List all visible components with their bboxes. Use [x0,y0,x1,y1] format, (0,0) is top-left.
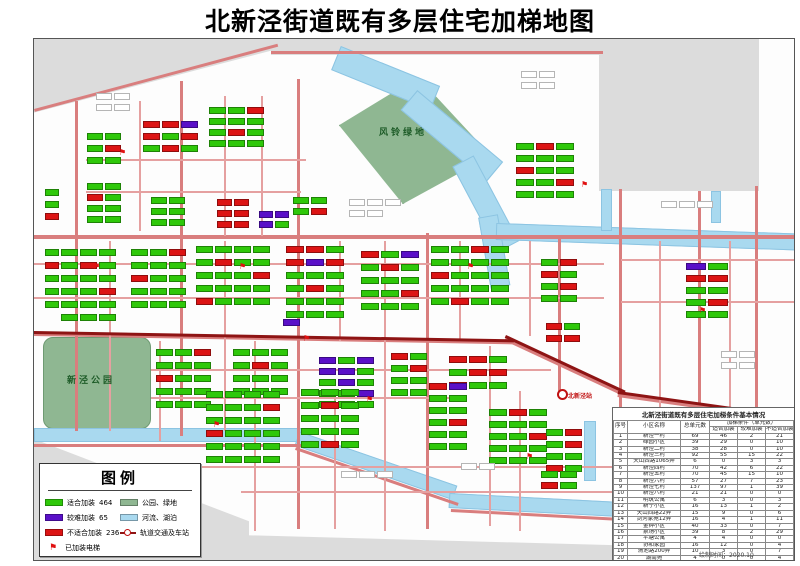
legend-title: 图例 [40,467,200,488]
building-block [529,409,547,416]
building-block [565,429,582,436]
building-block [326,272,344,279]
building-outline [341,471,357,478]
building-block [61,288,78,295]
building-block [196,259,213,266]
building-block [556,167,574,174]
building-block [151,208,167,215]
building-block [105,133,121,140]
building-block [206,456,223,463]
building-block [509,433,527,440]
map-canvas: ⚑⚑⚑⚑⚑⚑⚑⚑⚑⚑风铃绿地新泾公园北新泾站 图例 适合加装464较难加装65不… [33,38,795,561]
building-block [169,262,186,269]
building-block [541,471,558,478]
building-outline [739,362,755,369]
building-outline [96,104,112,111]
building-block [306,311,324,318]
building-block [105,157,121,164]
building-block [259,221,273,228]
building-block [321,415,339,422]
building-block [301,415,319,422]
building-block [150,275,167,282]
fengling-green-label: 风铃绿地 [379,125,427,138]
building-block [357,379,374,386]
building-block [87,194,103,201]
building-block [536,143,554,150]
building-block [341,428,359,435]
legend-column-2: 公园、绿地河流、湖泊轨道交通及车站 [120,495,195,555]
installed-elevator-flag-icon: ⚑ [581,181,588,189]
building-block [206,430,223,437]
building-block [275,211,289,218]
building-block [509,445,527,452]
building-block [45,201,59,208]
road-line [660,241,662,421]
building-block [449,369,467,376]
legend-count: 65 [99,514,108,522]
building-block [321,441,339,448]
building-block [451,246,469,253]
building-block [244,456,261,463]
road-line [86,191,301,193]
building-block [556,191,574,198]
road-line [140,101,142,231]
building-block [321,389,339,396]
building-block [80,288,97,295]
building-block [431,259,449,266]
building-block [99,262,116,269]
beixinjing-station-label: 北新泾站 [568,391,592,400]
installed-elevator-flag-icon: ⚑ [239,263,246,271]
building-block [99,249,116,256]
building-block [286,259,304,266]
road-line [241,491,621,493]
building-block [215,246,232,253]
building-block [156,388,173,395]
building-block [391,353,408,360]
building-block [293,197,309,204]
building-block [247,118,264,125]
building-block [541,482,558,489]
building-block [560,482,577,489]
building-block [429,419,447,426]
building-block [391,377,408,384]
building-block [381,303,399,310]
building-block [451,285,469,292]
building-block [556,179,574,186]
building-block [143,133,160,140]
building-block [194,375,211,382]
building-block [217,210,232,217]
building-block [410,365,427,372]
building-outline [479,463,495,470]
building-block [431,285,449,292]
building-block [431,272,449,279]
building-block [228,140,245,147]
building-block [560,271,577,278]
building-block [311,208,327,215]
building-outline [697,201,713,208]
legend-divider [48,490,192,491]
building-block [546,453,563,460]
building-block [209,107,226,114]
building-block [150,301,167,308]
building-block [326,285,344,292]
building-block [45,275,59,282]
building-block [196,285,213,292]
road-line [530,241,532,336]
conditions-table-title: 北新泾街道既有多层住宅加梯条件基本情况 [613,408,794,420]
building-block [87,183,103,190]
building-block [169,275,186,282]
building-block [491,272,509,279]
building-block [341,415,359,422]
building-block [271,375,288,382]
building-block [429,383,447,390]
building-block [271,362,288,369]
building-block [321,402,339,409]
building-block [196,272,213,279]
building-block [80,314,97,321]
building-block [536,191,554,198]
building-block [271,349,288,356]
legend-item: 河流、湖泊 [120,510,195,525]
building-block [516,167,534,174]
building-block [263,456,280,463]
building-block [560,259,577,266]
building-block [431,298,449,305]
building-block [175,349,192,356]
building-block [431,246,449,253]
building-block [471,298,489,305]
building-block [357,368,374,375]
building-block [293,208,309,215]
building-block [234,285,251,292]
road-line [730,241,732,421]
building-block [429,443,447,450]
building-block [150,249,167,256]
building-block [181,121,198,128]
building-block [169,219,185,226]
road-line [385,241,387,531]
legend-label: 已加装电梯 [65,543,100,553]
conditions-table-grid: 序号小区名称总单元数加梯条件（单元数）适合加装较难加装不适合加装 1新泾一村69… [613,420,794,561]
building-block [560,471,577,478]
legend-column-1: 适合加装464较难加装65不适合加装236⚑已加装电梯 [45,495,120,555]
building-block [162,121,179,128]
road-line [151,397,451,399]
building-outline [661,201,677,208]
installed-elevator-flag-icon: ⚑ [467,263,474,271]
building-block [286,311,304,318]
building-block [215,259,232,266]
building-block [489,409,507,416]
building-block [87,145,103,152]
building-block [225,456,242,463]
building-block [338,368,355,375]
building-outline [114,104,130,111]
metro-station-icon [557,389,568,400]
building-block [546,323,562,330]
building-block [306,298,324,305]
building-block [301,428,319,435]
building-block [686,275,706,282]
road-line [755,186,758,421]
building-block [99,288,116,295]
map-note: 绘制时间：2020.10 [699,550,754,559]
building-block [45,213,59,220]
building-block [252,349,269,356]
building-outline [385,199,401,206]
building-block [556,143,574,150]
installed-elevator-flag-icon: ⚑ [699,307,706,315]
building-block [489,445,507,452]
building-block [516,179,534,186]
building-block [516,191,534,198]
building-block [61,301,78,308]
building-block [234,298,251,305]
building-block [194,362,211,369]
building-block [391,365,408,372]
legend-count: 464 [99,499,112,507]
building-block [169,301,186,308]
xinjing-park-label: 新泾公园 [67,373,115,386]
building-block [708,299,728,306]
building-block [509,421,527,428]
building-block [449,407,467,414]
building-block [509,457,527,464]
building-block [175,362,192,369]
building-block [143,121,160,128]
legend-item: 不适合加装236 [45,525,120,540]
building-block [234,199,249,206]
installed-elevator-flag-icon: ⚑ [303,335,310,343]
building-block [151,219,167,226]
building-block [196,246,213,253]
building-outline [539,71,555,78]
building-block [131,301,148,308]
building-block [306,272,324,279]
building-block [469,369,487,376]
building-block [306,246,324,253]
building-block [449,356,467,363]
building-block [234,221,249,228]
building-outline [96,93,112,100]
building-block [196,298,213,305]
building-block [263,443,280,450]
building-outline [367,210,383,217]
building-block [225,404,242,411]
building-block [244,391,261,398]
building-block [338,357,355,364]
building-block [253,272,270,279]
red-swatch [45,529,63,536]
building-block [401,290,419,297]
building-block [259,211,273,218]
building-block [286,272,304,279]
building-block [169,208,185,215]
page-title: 北新泾街道既有多层住宅加梯地图 [0,2,800,38]
building-block [361,303,379,310]
building-block [244,417,261,424]
building-block [560,295,577,302]
building-block [338,379,355,386]
legend-count: 236 [106,529,119,537]
building-block [301,389,319,396]
building-block [471,272,489,279]
building-block [234,272,251,279]
building-block [546,335,562,342]
building-block [233,375,250,382]
building-outline [349,199,365,206]
building-block [87,133,103,140]
legend-label: 公园、绿地 [142,498,177,508]
building-block [361,264,379,271]
legend-item: ⚑已加装电梯 [45,540,120,555]
building-block [215,298,232,305]
building-block [206,391,223,398]
building-block [228,129,245,136]
building-block [131,249,148,256]
building-block [306,285,324,292]
purple-swatch [45,514,63,521]
building-block [489,382,507,389]
building-block [708,263,728,270]
building-block [80,301,97,308]
building-block [286,285,304,292]
building-block [536,155,554,162]
building-block [252,375,269,382]
building-block [244,430,261,437]
building-block [489,356,507,363]
building-block [391,389,408,396]
legend-label: 河流、湖泊 [142,513,177,523]
building-outline [679,201,695,208]
legend-label: 不适合加装 [67,528,102,538]
building-block [708,311,728,318]
building-block [162,133,179,140]
building-block [162,145,179,152]
building-block [253,285,270,292]
building-block [326,259,344,266]
building-block [252,362,269,369]
building-block [131,288,148,295]
conditions-table: 北新泾街道既有多层住宅加梯条件基本情况 序号小区名称总单元数加梯条件（单元数）适… [612,407,795,561]
legend-label: 较难加装 [67,513,95,523]
building-block [429,395,447,402]
building-block [326,311,344,318]
building-block [471,246,489,253]
building-block [45,249,59,256]
road-line [335,389,337,529]
building-outline [521,82,537,89]
building-block [401,303,419,310]
building-block [564,323,580,330]
building-block [217,199,232,206]
building-block [105,216,121,223]
building-block [169,288,186,295]
building-block [99,314,116,321]
building-block [45,189,59,196]
building-block [209,129,226,136]
building-block [175,401,192,408]
building-block [225,443,242,450]
building-block [686,263,706,270]
building-block [429,407,447,414]
table-header-row: 序号小区名称总单元数加梯条件（单元数） [614,421,794,427]
building-block [361,277,379,284]
building-block [61,262,78,269]
metro-station-icon [120,528,136,537]
building-block [61,314,78,321]
building-block [209,118,226,125]
building-block [301,402,319,409]
legend-box: 图例 适合加装464较难加装65不适合加装236⚑已加装电梯 公园、绿地河流、湖… [39,463,201,557]
building-block [45,301,59,308]
building-block [87,205,103,212]
building-block [306,259,324,266]
building-outline [359,471,375,478]
building-block [151,197,167,204]
building-outline [739,351,755,358]
building-block [263,417,280,424]
building-block [361,290,379,297]
building-block [206,404,223,411]
building-block [449,443,467,450]
building-block [451,272,469,279]
page: { "title": "北新泾街道既有多层住宅加梯地图", "map": { "… [0,0,800,566]
building-block [209,140,226,147]
building-block [99,301,116,308]
building-block [341,441,359,448]
building-block [156,401,173,408]
building-block [99,275,116,282]
road-line [621,259,794,261]
building-outline [367,199,383,206]
building-block [169,249,186,256]
building-block [283,319,300,326]
building-block [156,349,173,356]
building-block [247,107,264,114]
building-block [326,298,344,305]
building-block [150,288,167,295]
building-block [253,246,270,253]
building-block [381,277,399,284]
building-block [263,430,280,437]
building-block [228,118,245,125]
road-line [110,241,112,431]
building-block [529,433,547,440]
building-block [156,362,173,369]
building-block [228,107,245,114]
building-block [541,259,558,266]
building-block [233,362,250,369]
building-block [61,249,78,256]
legend-label: 轨道交通及车站 [140,528,189,538]
building-block [175,375,192,382]
building-block [410,377,427,384]
building-block [541,283,558,290]
installed-elevator-flag-icon: ⚑ [213,421,220,429]
building-block [247,129,264,136]
river-segment [601,189,612,231]
building-block [489,433,507,440]
river-segment [584,421,596,481]
road-line [34,235,794,239]
building-block [61,275,78,282]
building-block [80,275,97,282]
building-block [381,290,399,297]
